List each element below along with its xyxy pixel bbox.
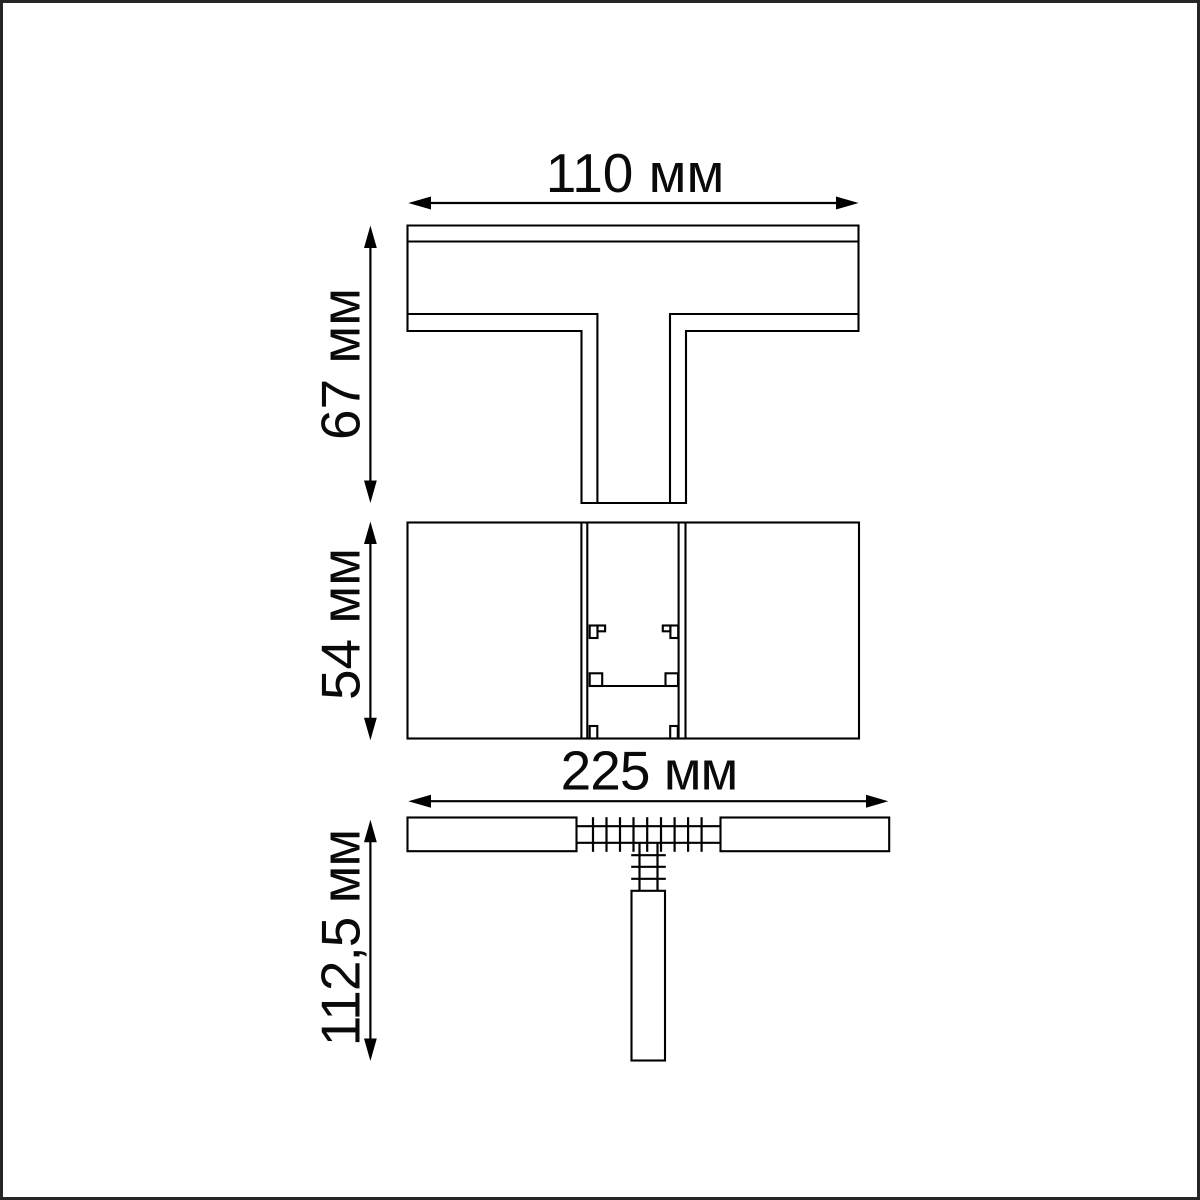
svg-text:225 мм: 225 мм bbox=[561, 740, 738, 802]
svg-text:67 мм: 67 мм bbox=[310, 288, 372, 440]
svg-text:110 мм: 110 мм bbox=[546, 142, 725, 204]
svg-text:54 мм: 54 мм bbox=[310, 548, 372, 700]
svg-text:112,5 мм: 112,5 мм bbox=[310, 830, 372, 1046]
